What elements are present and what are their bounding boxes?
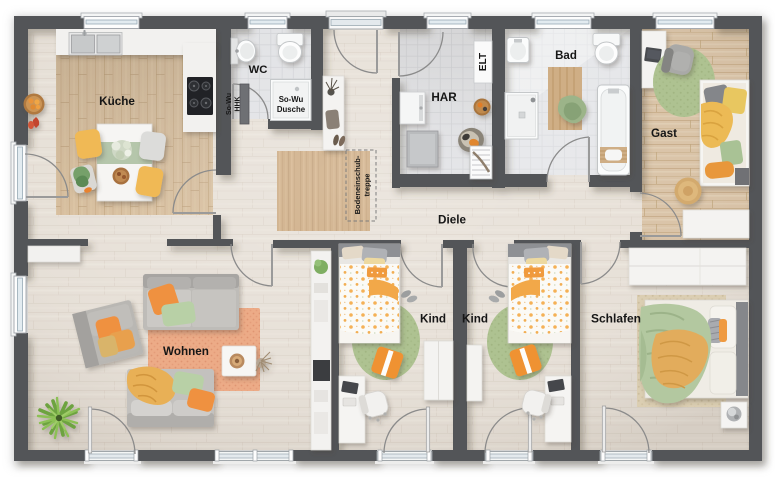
svg-text:Dusche: Dusche: [277, 105, 306, 114]
svg-text:Schlafen: Schlafen: [591, 312, 641, 326]
svg-text:WC: WC: [249, 64, 268, 76]
svg-text:Küche: Küche: [99, 95, 135, 108]
svg-text:So-Wu: So-Wu: [279, 95, 304, 104]
svg-text:ELT: ELT: [478, 53, 489, 71]
svg-text:Kind: Kind: [462, 313, 488, 326]
svg-text:So-Wu: So-Wu: [226, 93, 233, 115]
svg-text:Diele: Diele: [438, 214, 466, 227]
svg-text:HHK: HHK: [235, 96, 242, 111]
svg-text:Bad: Bad: [555, 50, 577, 62]
svg-text:Gast: Gast: [651, 127, 677, 140]
svg-text:Bodeneinschub-: Bodeneinschub-: [353, 155, 362, 214]
svg-text:treppe: treppe: [363, 174, 372, 197]
svg-text:Wohnen: Wohnen: [163, 345, 209, 358]
svg-text:Kind: Kind: [420, 313, 446, 326]
svg-text:HAR: HAR: [431, 91, 457, 104]
